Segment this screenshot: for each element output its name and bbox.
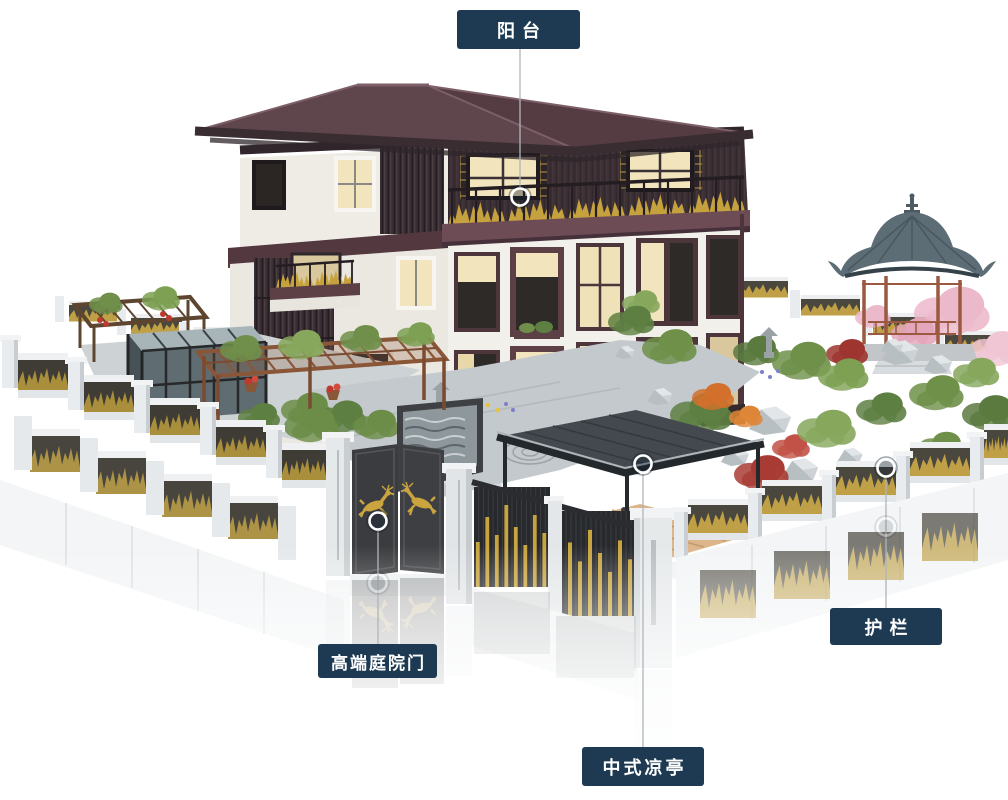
- callout-lines: [378, 49, 886, 747]
- hotspot-marker-balcony[interactable]: [509, 186, 531, 208]
- hotspot-marker-reflection: [875, 516, 897, 538]
- callout-badge-balcony[interactable]: 阳台: [457, 10, 580, 49]
- hotspot-marker-reflection: [367, 572, 389, 594]
- callout-badge-pavilion[interactable]: 中式凉亭: [582, 747, 704, 786]
- callout-overlay: [0, 0, 1008, 800]
- hotspot-marker-pavilion[interactable]: [632, 453, 654, 475]
- hotspot-marker-railing[interactable]: [875, 457, 897, 479]
- annotated-villa-render: 阳台 高端庭院门 中式凉亭 护栏: [0, 0, 1008, 800]
- callout-badge-railing[interactable]: 护栏: [830, 608, 942, 645]
- callout-badge-gate[interactable]: 高端庭院门: [318, 644, 437, 678]
- hotspot-marker-gate[interactable]: [367, 510, 389, 532]
